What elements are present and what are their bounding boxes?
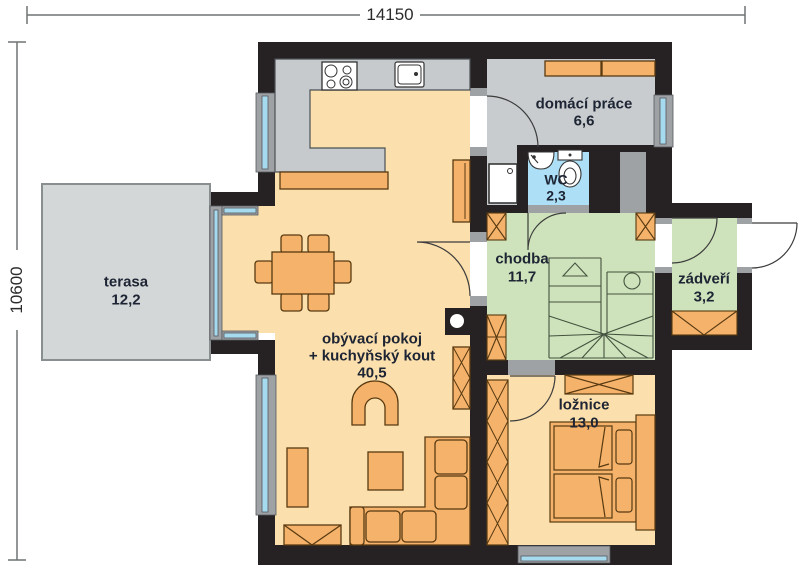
utility-room-label: domácí práce [536, 97, 633, 112]
wall-entry-right [737, 273, 752, 335]
sink [395, 62, 424, 87]
living-room-label-2: + kuchyňský kout [309, 349, 435, 364]
wall-entry-top [655, 203, 752, 218]
utility-hall-opening [620, 152, 646, 213]
low-cabinet [284, 525, 341, 545]
entry-area: 3,2 [694, 290, 715, 305]
kitchen-window [256, 93, 276, 172]
stove [322, 62, 357, 90]
wall-right-2 [655, 145, 672, 203]
living-door-gap [470, 242, 487, 296]
wall-top [258, 42, 672, 59]
bedroom-window [518, 546, 610, 563]
wall-left-3 [258, 354, 275, 377]
utility-furniture [545, 61, 655, 76]
mattress [554, 426, 612, 470]
hall-wardrobe [487, 315, 506, 360]
double-bed [550, 415, 655, 530]
hall-label: chodba [495, 252, 548, 267]
chair [308, 235, 329, 253]
wall-bedroom-top-2 [555, 360, 672, 375]
dining-table [272, 252, 334, 294]
entry-bench [672, 311, 737, 335]
living-room-area: 40,5 [357, 366, 386, 381]
bedroom-top-wardrobe [565, 375, 633, 394]
chair [281, 293, 302, 311]
wall-partition-3 [470, 306, 487, 545]
sideboard [287, 448, 308, 507]
jamb [655, 218, 672, 224]
tall-cabinet [453, 160, 470, 222]
utility-window [654, 95, 673, 147]
jamb [470, 88, 487, 96]
shower [489, 164, 517, 203]
hall-entry-door-gap [655, 224, 672, 267]
wall-right-3 [655, 350, 672, 545]
wall-wc-left [517, 145, 528, 213]
wall-bay-bottom [211, 340, 275, 354]
jamb [470, 296, 487, 306]
pillow [616, 430, 632, 464]
wall-entry-bottom [655, 335, 752, 350]
kitchen-island [280, 172, 388, 189]
chair [333, 261, 351, 283]
wall-cabinet [453, 347, 470, 409]
hall-wardrobe [487, 213, 506, 240]
living-room-label: obývací pokoj [322, 332, 422, 347]
wall-bedroom-top-1 [470, 360, 508, 375]
hall-wardrobe [636, 213, 655, 240]
wc-door-threshold [528, 205, 589, 213]
width-dimension-label: 14150 [360, 5, 419, 25]
jamb [737, 218, 752, 224]
utility-cabinet [602, 61, 655, 76]
bedroom-door-threshold [508, 360, 555, 375]
chair [281, 235, 302, 253]
terrace-label: terasa [104, 275, 148, 290]
bed-headboard [636, 415, 655, 530]
living-window [256, 375, 276, 515]
wall-partition-1 [470, 59, 487, 88]
mattress [554, 474, 612, 518]
wc-label: WC [544, 173, 567, 188]
hall-area: 11,7 [508, 270, 536, 285]
height-dimension-label: 10600 [7, 260, 27, 319]
terrace-area: 12,2 [111, 293, 140, 308]
wall-entry-left [655, 273, 672, 335]
wall-left-4 [258, 513, 275, 545]
utility-door-gap [470, 96, 487, 147]
entry-label: zádveří [678, 272, 730, 287]
jamb [470, 147, 487, 156]
bedroom-label: ložnice [559, 398, 610, 413]
chimney-flue [450, 314, 464, 328]
front-door-gap [737, 224, 752, 267]
wall-niche-bottom [487, 205, 528, 213]
floor-plan: 14150 10600 terasa 12,2 obývací pokoj + … [0, 0, 800, 577]
chair [255, 261, 273, 283]
utility-room-area: 6,6 [574, 114, 595, 129]
wall-partition-2 [470, 156, 487, 232]
wall-right-1 [655, 59, 672, 97]
wall-wc-right [589, 145, 600, 213]
wc-area: 2,3 [546, 189, 565, 204]
sofa-armrest [350, 507, 364, 545]
wall-left-1 [258, 59, 275, 95]
utility-cabinet [545, 61, 601, 76]
jamb [737, 267, 752, 273]
chair [308, 293, 329, 311]
bedroom-left-wardrobe [487, 380, 508, 545]
front-door [752, 223, 797, 268]
wall-bay-top [211, 192, 275, 206]
bedroom-area: 13,0 [569, 416, 598, 431]
wall-left-2 [258, 170, 275, 192]
pillow [616, 478, 632, 512]
coffee-table [368, 452, 403, 490]
jamb [470, 232, 487, 242]
terrace-floor [42, 184, 210, 360]
jamb [655, 267, 672, 273]
